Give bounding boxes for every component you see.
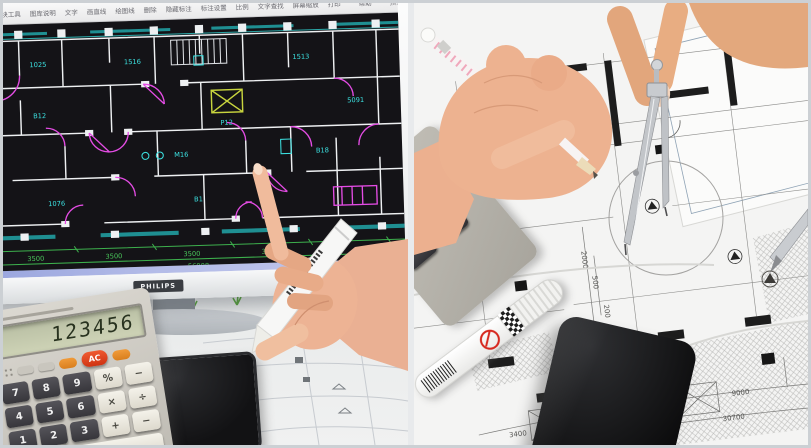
philips-monitor: 图块工具 图库说明 文字 画直线 绘图线 删除 隐藏标注 标注设置 比例 文字查… xyxy=(3,3,408,305)
photo-left-cad-workstation: 图块工具 图库说明 文字 画直线 绘图线 删除 隐藏标注 标注设置 比例 文字查… xyxy=(3,3,408,445)
calculator-left: 123456 AC 7 8 9 % − 4 5 6 × ÷ 1 xyxy=(3,287,176,445)
cad-menu-item: 图库说明 xyxy=(30,7,56,18)
svg-text:500: 500 xyxy=(590,275,600,289)
cad-floorplan: 1025 1516 B12 P12 M16 B18 1076 B1 5091 1… xyxy=(3,13,406,272)
calc-key: 1 xyxy=(8,428,38,445)
cad-menu-item: 帮助 xyxy=(358,3,371,7)
orange-function-key xyxy=(58,356,77,369)
calc-key: 3 xyxy=(70,418,100,442)
cad-canvas: 1025 1516 B12 P12 M16 B18 1076 B1 5091 1… xyxy=(3,13,406,272)
cad-walls xyxy=(3,29,404,226)
cad-menu-item: 图块工具 xyxy=(3,8,21,19)
svg-text:3500: 3500 xyxy=(105,252,122,261)
svg-text:1516: 1516 xyxy=(124,58,141,67)
photo-collage-frame: 图块工具 图库说明 文字 画直线 绘图线 删除 隐藏标注 标注设置 比例 文字查… xyxy=(0,0,811,448)
svg-text:1513: 1513 xyxy=(292,52,309,61)
calculator-display-value: 123456 xyxy=(51,309,135,346)
cad-menu-item: 删除 xyxy=(144,4,157,14)
svg-text:5091: 5091 xyxy=(347,96,364,105)
svg-text:3500: 3500 xyxy=(183,250,200,259)
cad-columns xyxy=(57,77,273,227)
calc-key: 7 xyxy=(3,381,31,405)
cad-menu-item: 文字 xyxy=(65,6,78,16)
photo-right-blueprint-desk: 3400 9000 30700 2000 500 200 0 0 1 xyxy=(414,3,808,445)
calc-key: ÷ xyxy=(128,385,158,409)
calc-key: 8 xyxy=(31,376,61,400)
calc-key: 4 xyxy=(4,405,34,429)
svg-text:1025: 1025 xyxy=(29,61,46,70)
ac-key: AC xyxy=(81,349,109,368)
bezel-sticker xyxy=(315,276,354,281)
calc-key: × xyxy=(97,390,127,414)
cad-menu-item: 画直线 xyxy=(87,5,107,16)
speaker-dots xyxy=(3,367,13,379)
svg-text:3500: 3500 xyxy=(261,247,278,256)
svg-text:B12: B12 xyxy=(33,112,46,120)
calc-key: % xyxy=(93,366,123,390)
calc-key: 2 xyxy=(39,423,69,445)
svg-text:M16: M16 xyxy=(174,151,188,159)
cad-menu-item: 绘图线 xyxy=(115,4,135,15)
cad-menu-item: 比例 xyxy=(235,3,248,11)
cad-elevator xyxy=(211,89,243,113)
cad-menu-item: 文字查找 xyxy=(257,3,283,11)
calc-key: − xyxy=(131,409,161,433)
svg-text:P12: P12 xyxy=(220,118,233,126)
memory-key xyxy=(38,361,55,371)
memory-key xyxy=(17,364,34,374)
calc-key: 9 xyxy=(62,371,92,395)
svg-text:3500: 3500 xyxy=(27,255,44,264)
cad-menu-item: 隐藏标注 xyxy=(166,3,192,13)
svg-text:200: 200 xyxy=(602,304,612,318)
cad-menu-item: 预览 xyxy=(389,3,398,6)
calc-key: 5 xyxy=(35,400,65,424)
calc-key: 6 xyxy=(66,395,96,419)
svg-text:1076: 1076 xyxy=(48,200,65,209)
cad-menu-item: 屏幕缩放 xyxy=(292,3,318,9)
cad-menu-item: 打印 xyxy=(327,3,340,8)
svg-text:B1: B1 xyxy=(194,195,203,203)
svg-text:B18: B18 xyxy=(316,146,329,154)
calc-key: − xyxy=(124,361,154,385)
orange-function-key xyxy=(112,348,131,361)
cad-stairs xyxy=(171,39,227,65)
calc-key: + xyxy=(101,414,131,438)
cad-menu-item: 标注设置 xyxy=(201,3,227,12)
desk-marker-symbols xyxy=(295,357,351,413)
calc-key xyxy=(414,229,439,271)
